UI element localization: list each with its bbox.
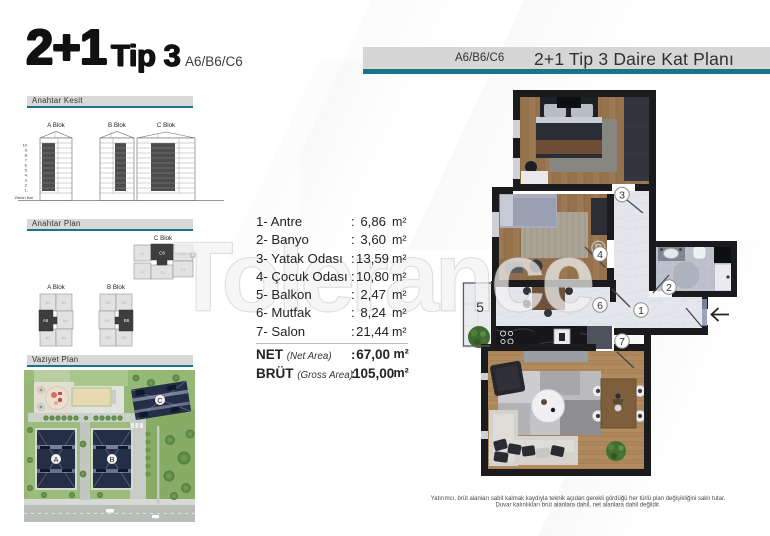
svg-text:2: 2 bbox=[666, 282, 672, 294]
svg-text:A4: A4 bbox=[62, 335, 68, 340]
svg-text:3: 3 bbox=[619, 189, 625, 201]
svg-text:A6: A6 bbox=[43, 318, 49, 323]
svg-text:C Blok: C Blok bbox=[154, 235, 173, 242]
svg-text:C4: C4 bbox=[180, 267, 186, 272]
svg-text:C5: C5 bbox=[180, 251, 186, 256]
svg-text:B5: B5 bbox=[105, 318, 111, 323]
svg-text:5: 5 bbox=[476, 299, 484, 315]
svg-text:C: C bbox=[157, 396, 163, 405]
svg-text:C2: C2 bbox=[139, 269, 145, 274]
svg-text:7: 7 bbox=[619, 336, 625, 348]
svg-text:A5: A5 bbox=[63, 318, 69, 323]
svg-text:4: 4 bbox=[597, 249, 603, 261]
svg-text:B3: B3 bbox=[106, 335, 112, 340]
svg-text:A: A bbox=[53, 455, 58, 464]
svg-text:C Blok: C Blok bbox=[157, 122, 176, 129]
svg-text:B Blok: B Blok bbox=[108, 122, 127, 129]
svg-text:A Blok: A Blok bbox=[47, 284, 65, 291]
svg-text:C6: C6 bbox=[159, 251, 165, 256]
svg-text:B4: B4 bbox=[122, 335, 128, 340]
svg-text:C1: C1 bbox=[139, 251, 145, 256]
svg-text:B1: B1 bbox=[106, 300, 112, 305]
svg-text:B: B bbox=[109, 455, 114, 464]
svg-text:1: 1 bbox=[638, 305, 644, 317]
svg-text:B6: B6 bbox=[124, 318, 130, 323]
svg-text:B2: B2 bbox=[122, 300, 128, 305]
svg-text:A3: A3 bbox=[46, 335, 52, 340]
svg-text:C3: C3 bbox=[159, 270, 165, 275]
svg-text:A1: A1 bbox=[46, 300, 52, 305]
svg-text:Zemin Kat: Zemin Kat bbox=[15, 195, 34, 200]
svg-text:6: 6 bbox=[597, 300, 603, 312]
svg-text:A2: A2 bbox=[62, 300, 68, 305]
svg-text:B Blok: B Blok bbox=[107, 284, 126, 291]
svg-text:A Blok: A Blok bbox=[47, 122, 65, 129]
svg-text:1.: 1. bbox=[25, 188, 28, 193]
